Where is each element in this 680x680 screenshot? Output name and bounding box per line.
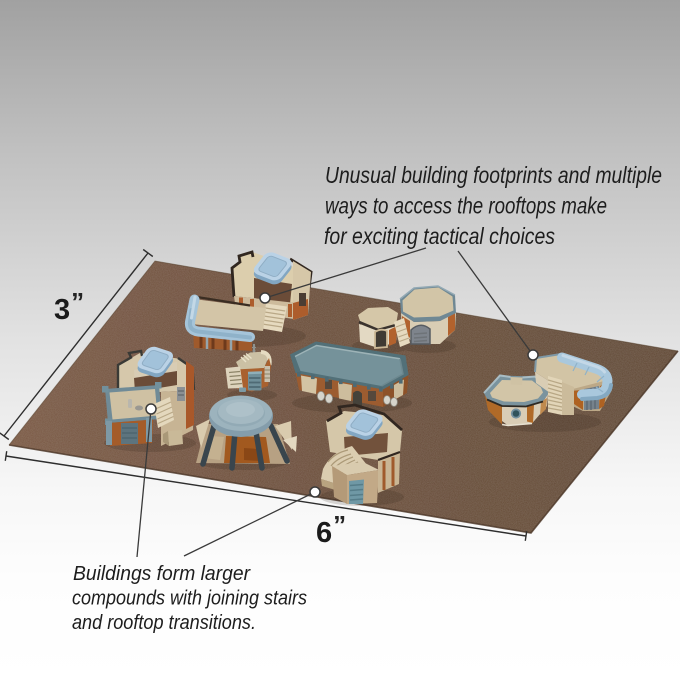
svg-text:Unusual building footprints an: Unusual building footprints and multiple bbox=[325, 162, 662, 188]
svg-text:ways to access the rooftops ma: ways to access the rooftops make bbox=[325, 193, 607, 219]
svg-text:and rooftop transitions.: and rooftop transitions. bbox=[72, 611, 256, 634]
svg-text:for exciting tactical choices: for exciting tactical choices bbox=[324, 223, 555, 249]
svg-text:compounds with joining stairs: compounds with joining stairs bbox=[72, 587, 307, 610]
svg-text:Buildings form larger: Buildings form larger bbox=[73, 562, 251, 585]
